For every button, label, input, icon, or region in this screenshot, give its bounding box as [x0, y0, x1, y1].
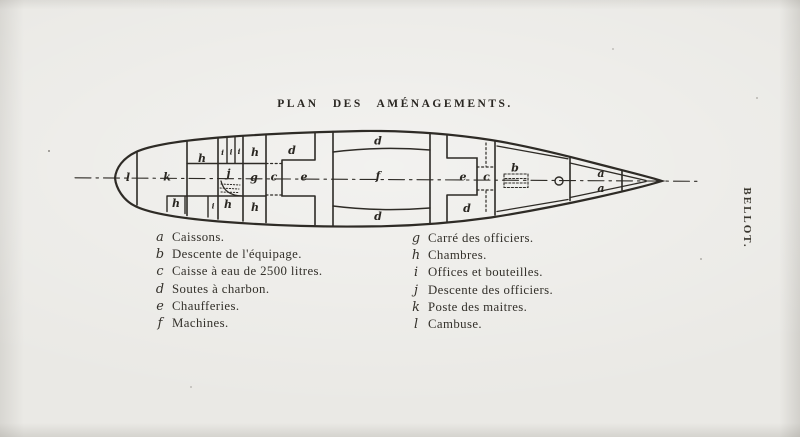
- scanned-page: PLAN DES AMÉNAGEMENTS.: [0, 0, 800, 437]
- legend-letter: f: [152, 315, 168, 332]
- compartment-label-h-2: h: [251, 146, 259, 159]
- legend-letter: j: [408, 282, 424, 299]
- compartment-label-c-1: c: [271, 171, 278, 184]
- legend-text: Caissons.: [172, 229, 224, 246]
- legend-text: Chambres.: [428, 247, 487, 264]
- legend-item-c: c Caisse à eau de 2500 litres.: [152, 263, 323, 280]
- legend-letter: c: [152, 263, 168, 280]
- compartment-label-g: g: [250, 171, 258, 184]
- legend-item-h: h Chambres.: [408, 247, 553, 264]
- legend-letter: k: [408, 299, 424, 316]
- compartment-label-j: j: [225, 167, 231, 180]
- legend-text: Machines.: [172, 315, 229, 332]
- legend-letter: e: [152, 298, 168, 315]
- legend-item-i: i Offices et bouteilles.: [408, 264, 553, 281]
- compartment-label-e-1: e: [301, 171, 308, 184]
- legend-letter: a: [152, 229, 168, 246]
- compartment-label-l: l: [126, 171, 130, 184]
- compartment-label-d-4: d: [463, 202, 471, 215]
- legend-letter: d: [152, 281, 168, 298]
- compartment-label-d-2: d: [374, 135, 382, 148]
- legend-letter: l: [408, 316, 424, 333]
- legend-text: Offices et bouteilles.: [428, 264, 543, 281]
- compartment-label-i-2: i: [230, 148, 233, 157]
- legend-item-a: a Caissons.: [152, 229, 323, 246]
- compartment-label-c-2: c: [483, 171, 490, 184]
- compartment-label-b: b: [511, 162, 519, 175]
- legend-text: Descente des officiers.: [428, 282, 553, 299]
- stair-j: [220, 181, 242, 196]
- legend-item-f: f Machines.: [152, 315, 323, 332]
- legend-item-k: k Poste des maitres.: [408, 299, 553, 316]
- legend-item-e: e Chaufferies.: [152, 298, 323, 315]
- compartment-label-a-2: a: [597, 182, 604, 195]
- legend-letter: h: [408, 247, 424, 264]
- compartment-label-i-1: i: [221, 148, 224, 157]
- legend-text: Caisse à eau de 2500 litres.: [172, 263, 323, 280]
- compartment-label-h-1: h: [198, 152, 206, 165]
- legend-item-d: d Soutes à charbon.: [152, 281, 323, 298]
- compartment-label-k: k: [163, 171, 171, 184]
- legend-item-g: g Carré des officiers.: [408, 230, 553, 247]
- legend-text: Descente de l'équipage.: [172, 246, 302, 263]
- legend-item-b: b Descente de l'équipage.: [152, 246, 323, 263]
- ship-plan-diagram: l k h i i i h d j g c e d f d e c d b a …: [0, 0, 800, 437]
- compartment-label-h-5: h: [251, 201, 259, 214]
- legend-letter: i: [408, 264, 424, 281]
- compartment-label-d-3: d: [374, 210, 382, 223]
- side-caption: BELLOT.: [741, 187, 753, 248]
- compartment-label-a-1: a: [597, 167, 604, 180]
- legend-text: Poste des maitres.: [428, 299, 527, 316]
- legend-left-column: a Caissons. b Descente de l'équipage. c …: [152, 229, 323, 332]
- legend-text: Soutes à charbon.: [172, 281, 269, 298]
- legend-letter: g: [408, 230, 424, 247]
- legend-item-l: l Cambuse.: [408, 316, 553, 333]
- compartment-label-e-2: e: [460, 171, 467, 184]
- compartment-label-h-4: h: [224, 198, 232, 211]
- compartment-label-i-4: i: [212, 202, 215, 211]
- compartment-label-f: f: [375, 170, 383, 183]
- legend-text: Cambuse.: [428, 316, 482, 333]
- legend-right-column: g Carré des officiers. h Chambres. i Off…: [408, 230, 553, 333]
- compartment-label-i-3: i: [238, 147, 241, 156]
- legend-item-j: j Descente des officiers.: [408, 282, 553, 299]
- legend-letter: b: [152, 246, 168, 263]
- compartment-label-h-3: h: [172, 197, 180, 210]
- legend-text: Chaufferies.: [172, 298, 239, 315]
- legend-text: Carré des officiers.: [428, 230, 533, 247]
- compartment-label-d-1: d: [288, 144, 296, 157]
